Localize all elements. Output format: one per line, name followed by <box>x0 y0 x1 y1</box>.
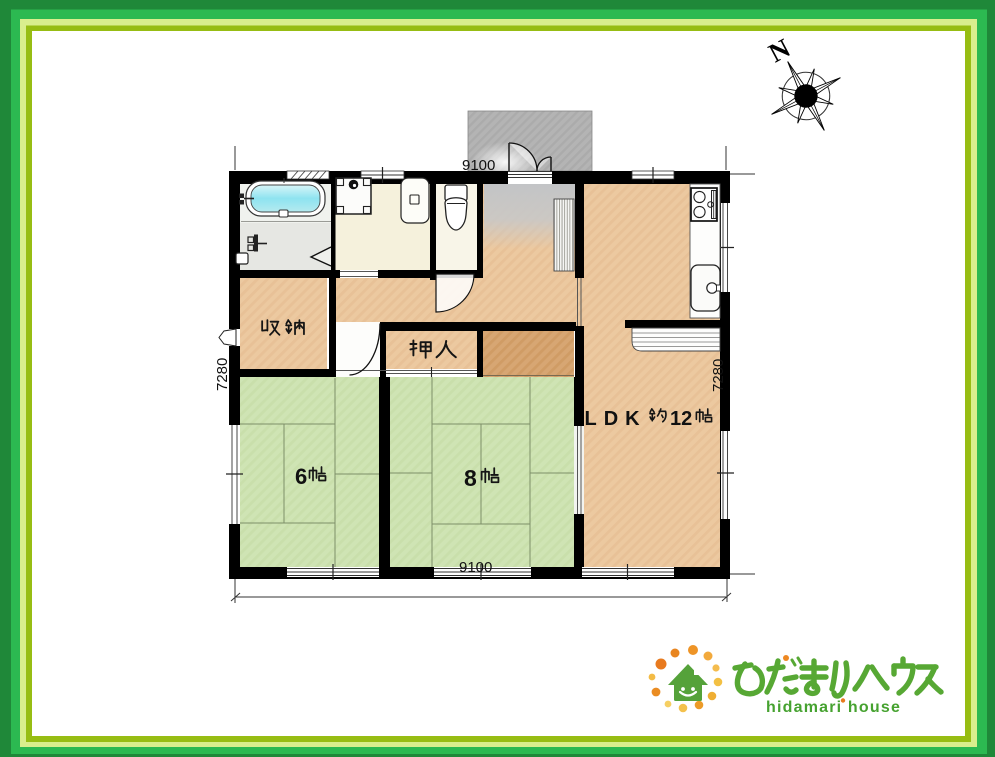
svg-text:7280: 7280 <box>214 358 231 391</box>
svg-text:hidamari house: hidamari house <box>766 699 901 716</box>
svg-text:8: 8 <box>464 465 477 491</box>
svg-text:12: 12 <box>670 408 692 430</box>
svg-text:6: 6 <box>295 464 307 489</box>
svg-text:7280: 7280 <box>710 359 727 392</box>
svg-text:9100: 9100 <box>459 559 492 576</box>
svg-text:LDK: LDK <box>585 408 647 430</box>
svg-text:9100: 9100 <box>462 157 495 174</box>
